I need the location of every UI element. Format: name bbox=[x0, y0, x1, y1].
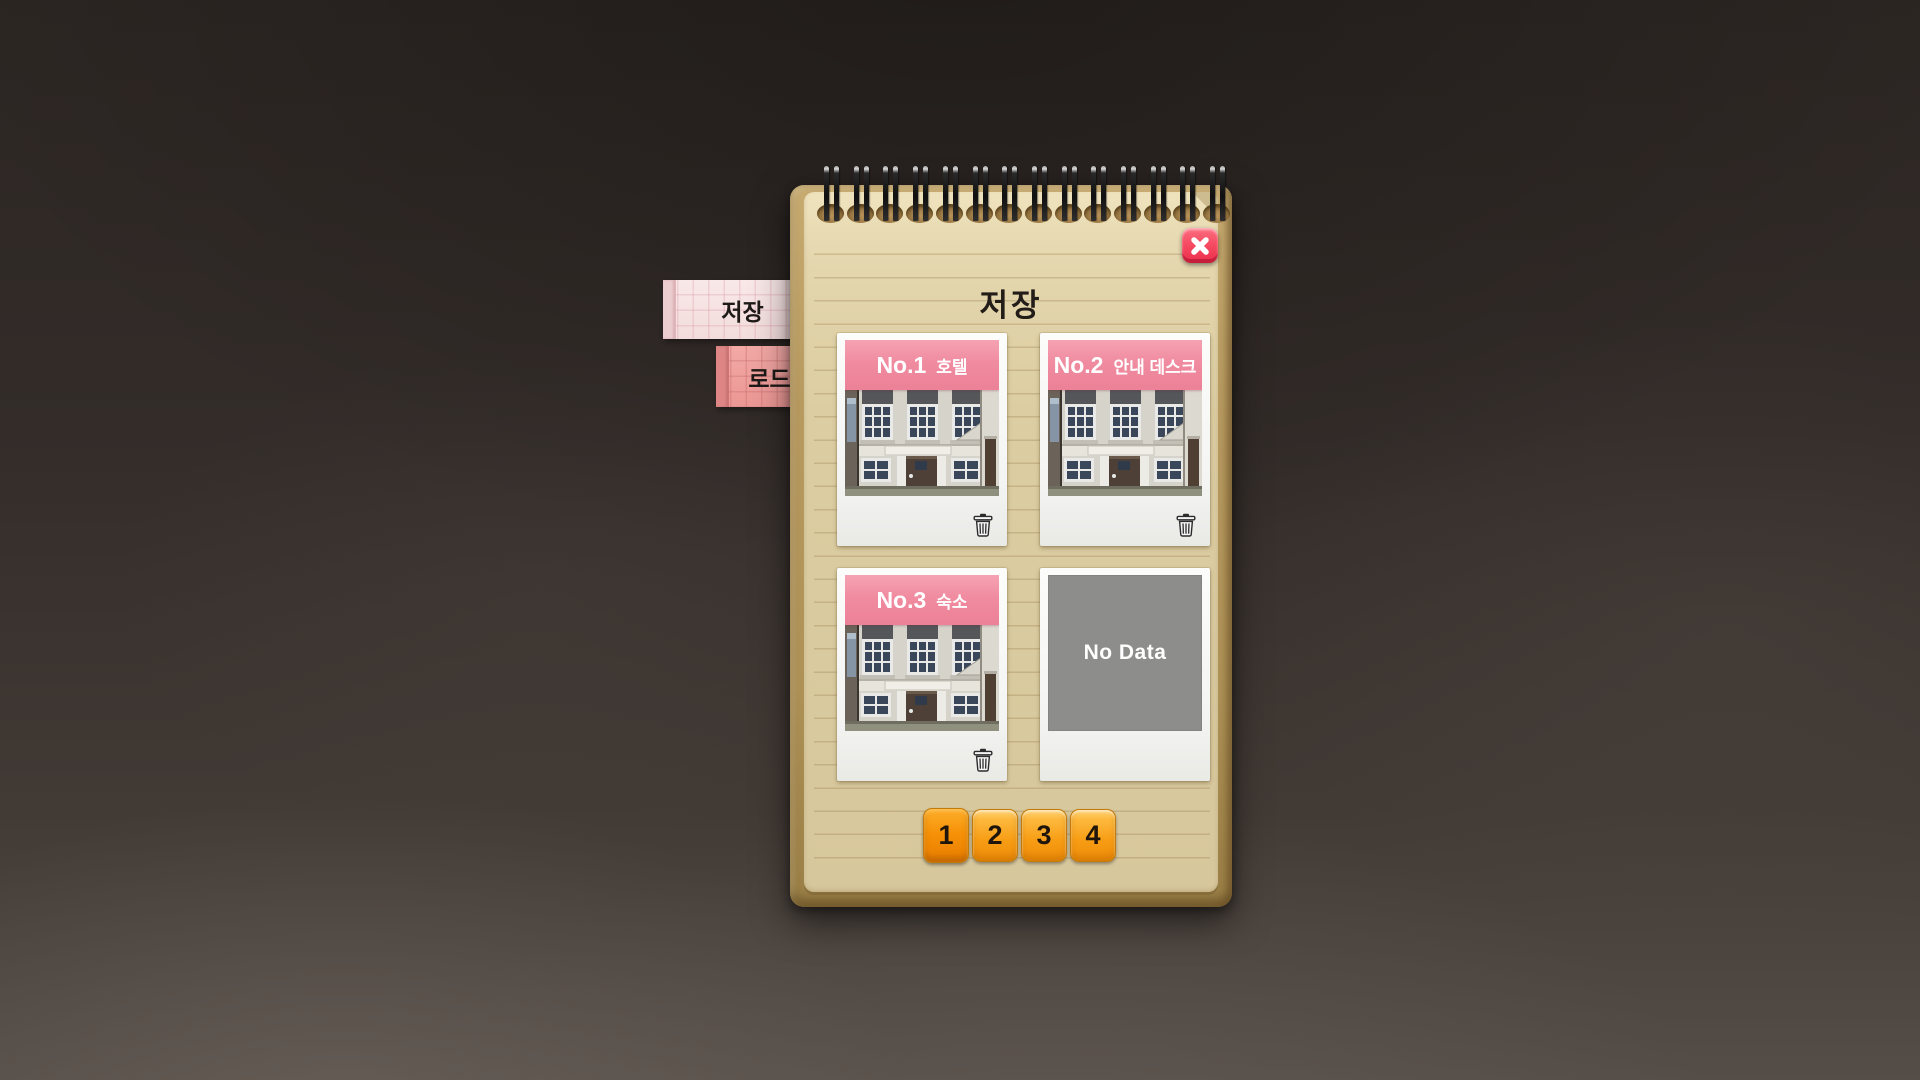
slot-number: No.2 bbox=[1054, 352, 1104, 379]
slot-name: 숙소 bbox=[936, 588, 967, 613]
empty-thumbnail: No Data bbox=[1048, 575, 1202, 731]
save-slot-2[interactable]: No.2 안내 데스크 bbox=[1040, 333, 1210, 546]
slot-label: No.1 호텔 bbox=[845, 340, 999, 390]
spiral-ring bbox=[1176, 166, 1200, 224]
spiral-ring bbox=[850, 166, 874, 224]
spiral-ring bbox=[939, 166, 963, 224]
close-icon bbox=[1189, 235, 1211, 257]
slot-footer bbox=[845, 731, 999, 775]
spiral-ring bbox=[879, 166, 903, 224]
page-button-2[interactable]: 2 bbox=[972, 809, 1018, 862]
slot-label: No.3 숙소 bbox=[845, 575, 999, 625]
spiral-ring bbox=[998, 166, 1022, 224]
save-slot-3[interactable]: No.3 숙소 bbox=[837, 568, 1007, 781]
save-slot-1[interactable]: No.1 호텔 bbox=[837, 333, 1007, 546]
slot-name: 안내 데스크 bbox=[1113, 353, 1196, 378]
close-button[interactable] bbox=[1182, 228, 1218, 263]
slot-footer bbox=[845, 496, 999, 540]
slot-number: No.1 bbox=[876, 352, 926, 379]
slot-number: No.3 bbox=[876, 587, 926, 614]
spiral-ring bbox=[1028, 166, 1052, 224]
save-slot-4[interactable]: No Data bbox=[1040, 568, 1210, 781]
page-button-3[interactable]: 3 bbox=[1021, 809, 1067, 862]
trash-icon bbox=[973, 748, 993, 772]
spiral-ring bbox=[1058, 166, 1082, 224]
tab-save-label: 저장 bbox=[711, 293, 763, 327]
spiral-ring bbox=[1087, 166, 1111, 224]
spiral-ring bbox=[1117, 166, 1141, 224]
slot-footer bbox=[1048, 731, 1202, 775]
no-data-label: No Data bbox=[1084, 641, 1167, 665]
delete-save-button[interactable] bbox=[973, 748, 993, 772]
delete-save-button[interactable] bbox=[1176, 513, 1196, 537]
tab-edge-strip bbox=[716, 346, 729, 407]
page-button-4[interactable]: 4 bbox=[1070, 809, 1116, 862]
page-button-1[interactable]: 1 bbox=[923, 808, 969, 863]
trash-icon bbox=[1176, 513, 1196, 537]
spiral-ring bbox=[820, 166, 844, 224]
slot-name: 호텔 bbox=[936, 353, 967, 378]
trash-icon bbox=[973, 513, 993, 537]
slot-footer bbox=[1048, 496, 1202, 540]
ruled-lines bbox=[814, 232, 1210, 880]
tab-edge-strip bbox=[663, 280, 676, 339]
spiral-ring bbox=[909, 166, 933, 224]
save-thumbnail: No.3 숙소 bbox=[845, 575, 999, 731]
slot-label: No.2 안내 데스크 bbox=[1048, 340, 1202, 390]
spiral-ring bbox=[1206, 166, 1230, 224]
save-thumbnail: No.1 호텔 bbox=[845, 340, 999, 496]
game-screen: 저장 로드 저장 No.1 호텔 bbox=[0, 0, 1920, 1080]
spiral-binding bbox=[820, 166, 1234, 224]
panel-title: 저장 bbox=[804, 280, 1218, 325]
tab-load-label: 로드 bbox=[738, 360, 790, 394]
delete-save-button[interactable] bbox=[973, 513, 993, 537]
spiral-ring bbox=[969, 166, 993, 224]
save-thumbnail: No.2 안내 데스크 bbox=[1048, 340, 1202, 496]
spiral-ring bbox=[1147, 166, 1171, 224]
